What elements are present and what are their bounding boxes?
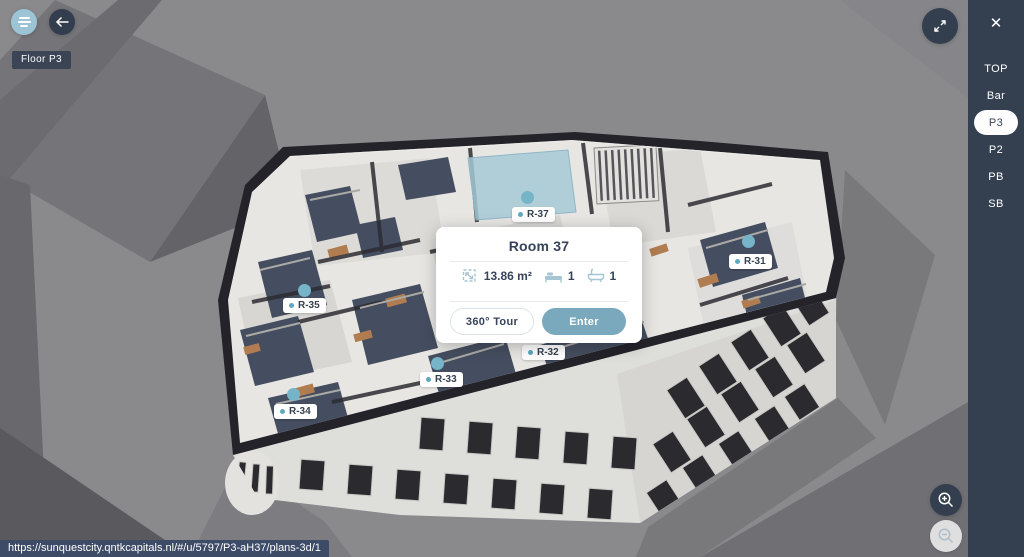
room-marker-dot-r34[interactable] [287,388,300,401]
room-marker-dot-r35[interactable] [298,284,311,297]
room-label-r31[interactable]: R-31 [729,254,772,269]
room-dot-icon [289,303,294,308]
room-stats: 13.86 m² 1 1 [436,268,642,283]
divider [450,261,628,262]
tour-360-button[interactable]: 360° Tour [450,308,534,335]
fullscreen-button[interactable] [922,8,958,44]
room-label-r33[interactable]: R-33 [420,372,463,387]
room-marker-dot-r31[interactable] [742,235,755,248]
room-marker-dot-r37[interactable] [521,191,534,204]
bath-value: 1 [610,269,617,283]
room-dot-icon [518,212,523,217]
room-dot-icon [528,350,533,355]
area-stat: 13.86 m² [462,268,532,283]
bed-stat: 1 [544,269,575,283]
floor-item-pb[interactable]: PB [968,163,1024,190]
back-arrow-icon [55,16,70,28]
floor-item-p3[interactable]: P3 [968,109,1024,136]
floor-item-sb[interactable]: SB [968,190,1024,217]
room-label-r34[interactable]: R-34 [274,404,317,419]
room-label-r37[interactable]: R-37 [512,207,555,222]
area-icon [462,268,479,283]
room-dot-icon [280,409,285,414]
floor-selector-sidebar: ✕ TOP Bar P3 P2 PB SB [968,0,1024,557]
bed-icon [544,269,563,283]
divider [450,301,628,302]
zoom-in-button[interactable] [930,484,962,516]
enter-room-button[interactable]: Enter [542,308,626,335]
room-label-text: R-37 [527,209,549,220]
close-button[interactable]: ✕ [968,12,1024,34]
zoom-out-button[interactable] [930,520,962,552]
area-value: 13.86 m² [484,269,532,283]
room-dot-icon [426,377,431,382]
room-label-r32[interactable]: R-32 [522,345,565,360]
room-card-title: Room 37 [436,238,642,254]
floor-item-p2[interactable]: P2 [968,136,1024,163]
link-status-bar: https://sunquestcity.qntkcapitals.nl/#/u… [0,540,329,557]
fullscreen-icon [932,18,948,34]
floor-list: TOP Bar P3 P2 PB SB [968,55,1024,217]
room-dot-icon [735,259,740,264]
floor-item-top[interactable]: TOP [968,55,1024,82]
room-label-r35[interactable]: R-35 [283,298,326,313]
bed-value: 1 [568,269,575,283]
room-label-text: R-33 [435,374,457,385]
bath-icon [587,268,605,283]
room-info-card: Room 37 13.86 m² 1 [436,227,642,343]
room-label-text: R-32 [537,347,559,358]
room-label-text: R-35 [298,300,320,311]
floors-menu-button[interactable] [11,9,37,35]
back-button[interactable] [49,9,75,35]
zoom-out-icon [937,527,955,545]
floor-badge: Floor P3 [12,51,71,69]
zoom-in-icon [937,491,955,509]
room-label-text: R-31 [744,256,766,267]
room-marker-dot-r33[interactable] [431,357,444,370]
floor-item-bar[interactable]: Bar [968,82,1024,109]
room-label-text: R-34 [289,406,311,417]
bath-stat: 1 [587,268,617,283]
menu-icon [19,17,30,19]
